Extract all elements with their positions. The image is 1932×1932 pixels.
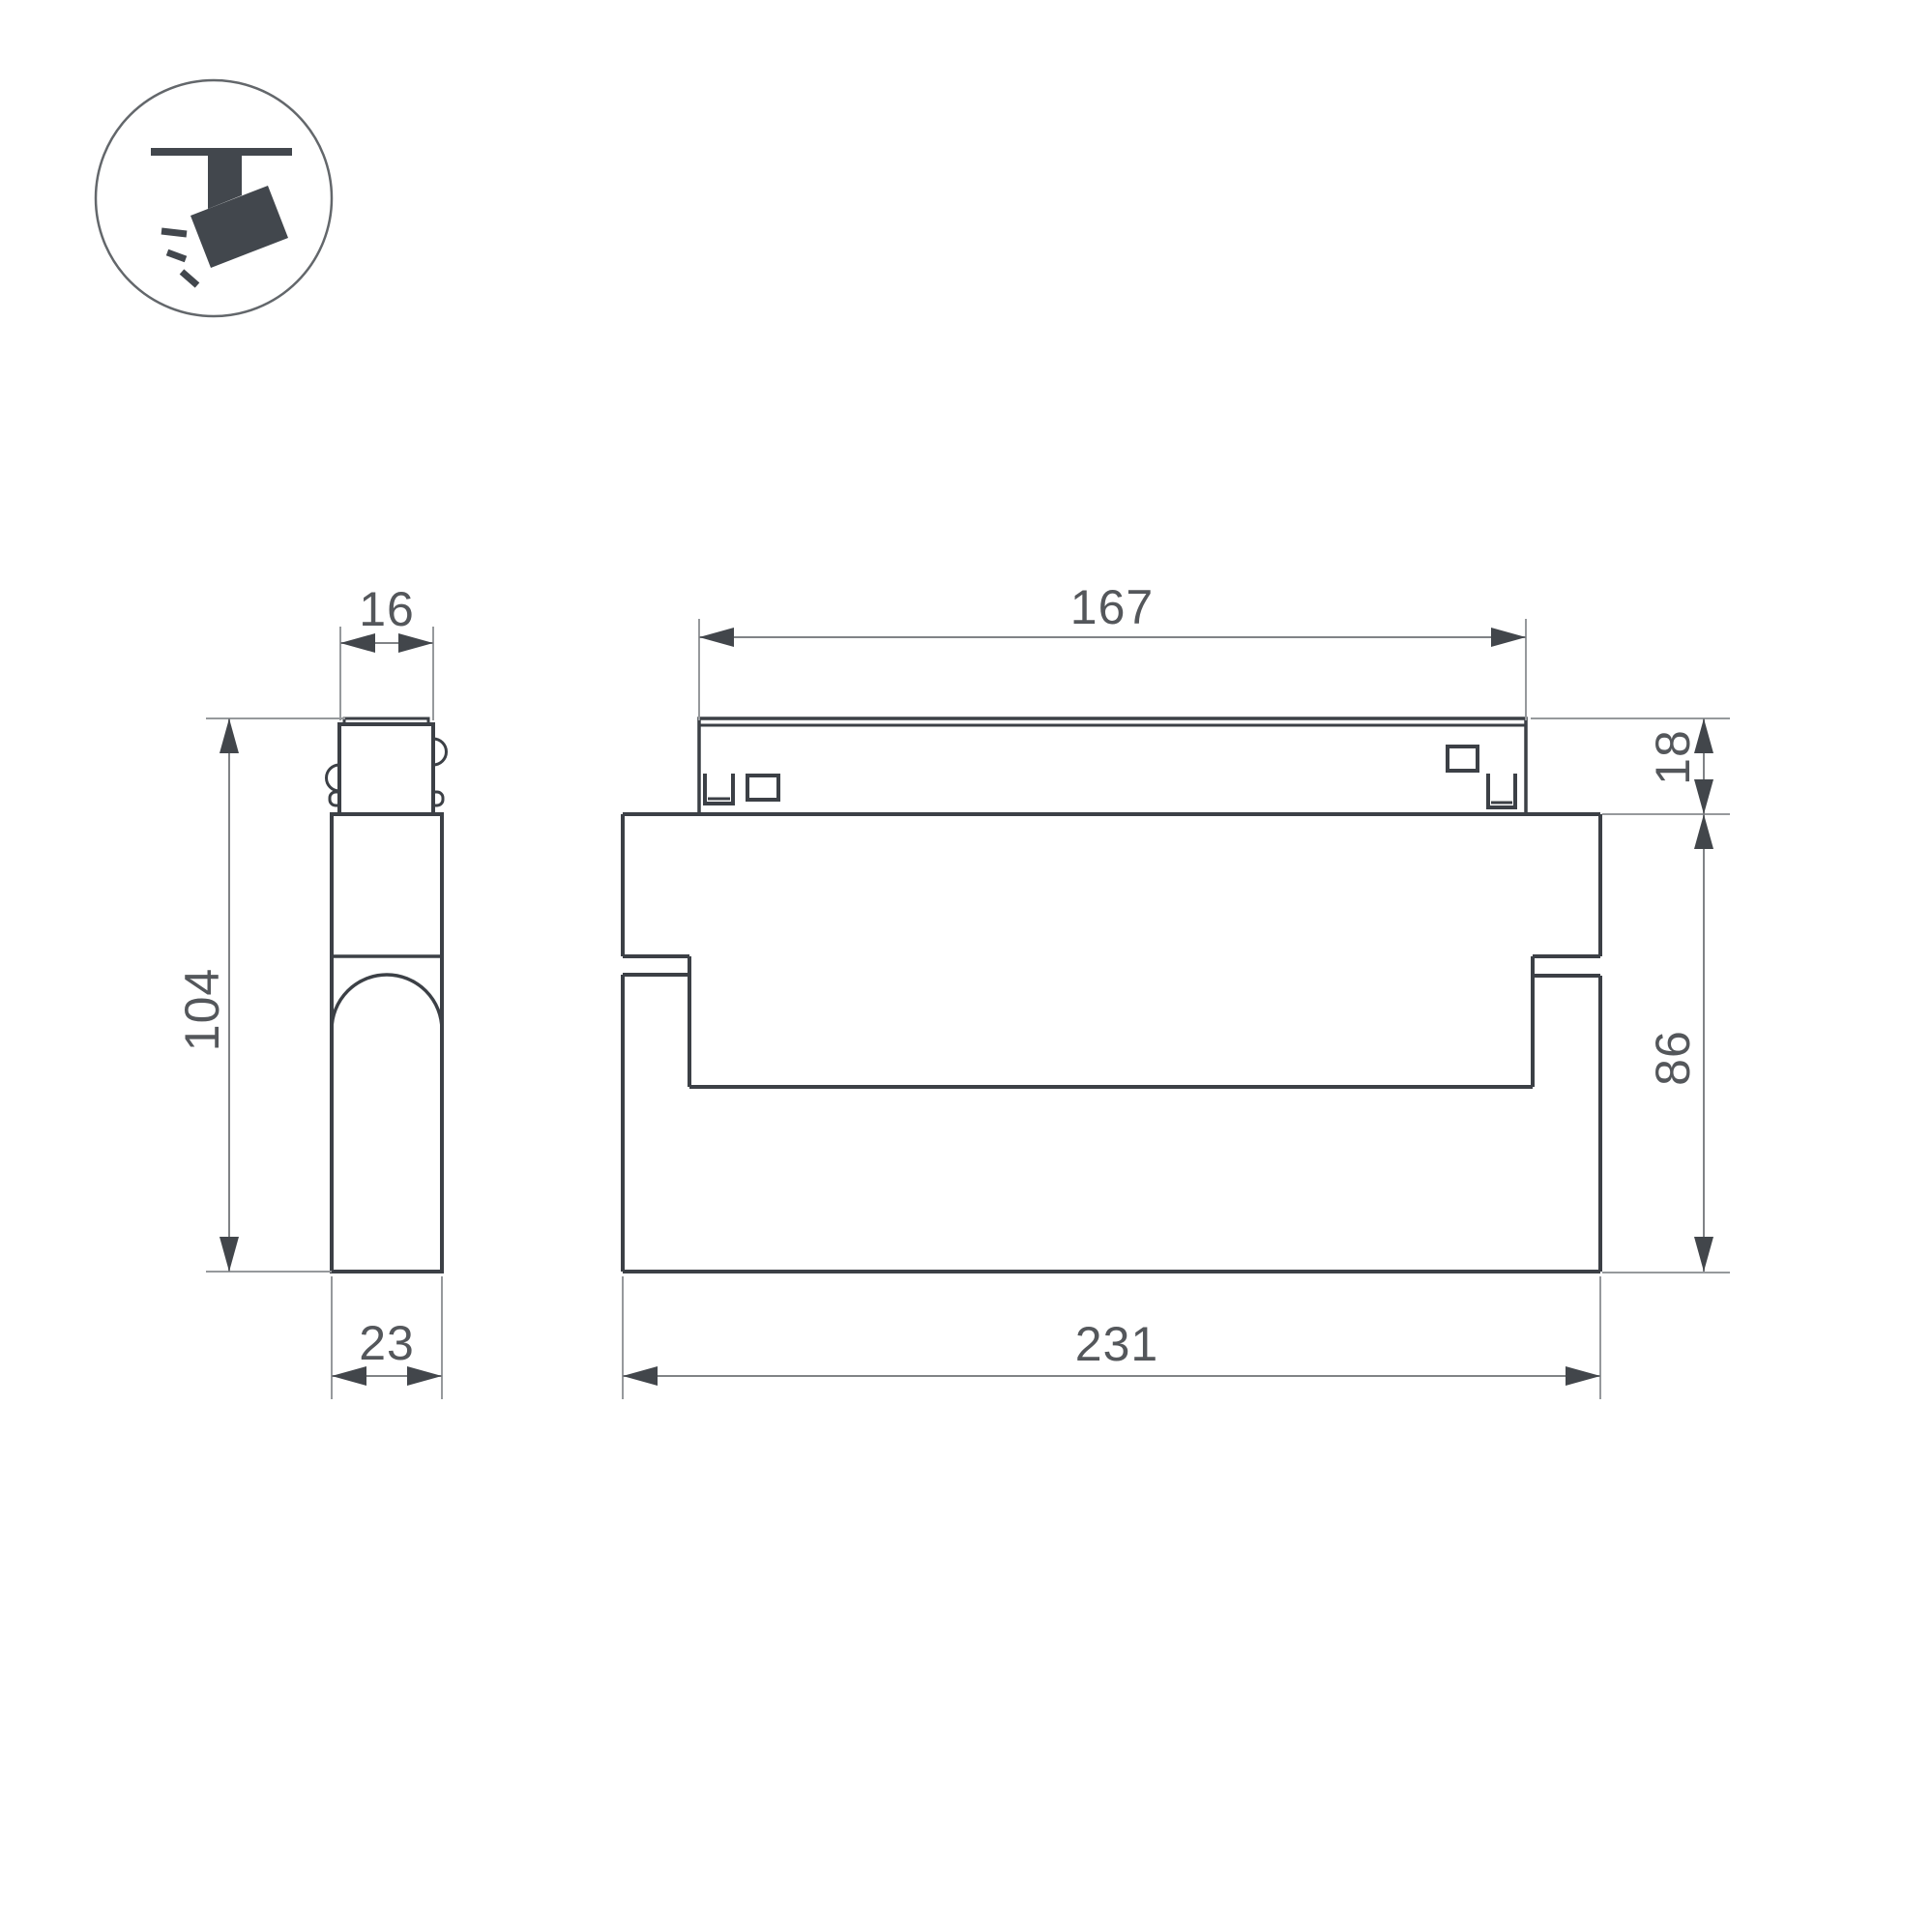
dim-label-16: 16 <box>359 582 415 636</box>
dim-label-104: 104 <box>175 968 229 1051</box>
arrow-167-right <box>1491 628 1526 647</box>
side-body <box>332 814 442 1272</box>
arrow-104-down <box>220 1237 239 1272</box>
dim-label-231: 231 <box>1075 1317 1158 1371</box>
arrow-167-left <box>699 628 734 647</box>
arrow-231-right <box>1566 1366 1600 1386</box>
dim-label-18: 18 <box>1646 729 1700 785</box>
arrow-86-up <box>1694 814 1713 849</box>
dim-label-23: 23 <box>359 1316 415 1370</box>
side-track-connector <box>339 724 433 814</box>
front-view <box>623 718 1600 1272</box>
ray-3 <box>182 272 197 285</box>
front-track-adapter <box>699 718 1526 814</box>
spotlight-glyph <box>151 148 292 268</box>
side-connector-bump-left <box>327 765 340 791</box>
side-connector-bump-right <box>433 739 447 765</box>
track-light-icon <box>96 80 332 316</box>
front-body-outline <box>623 814 1600 1272</box>
arrow-86-down <box>1694 1237 1713 1272</box>
side-head-dome <box>332 975 442 1030</box>
icon-lamp-head <box>190 186 288 268</box>
ray-1 <box>161 231 187 234</box>
arrow-16-right <box>398 633 433 653</box>
arrow-16-left <box>340 633 375 653</box>
arrow-104-up <box>220 718 239 753</box>
dim-label-86: 86 <box>1646 1030 1700 1086</box>
ray-2 <box>167 252 186 259</box>
dimension-lines <box>229 637 1704 1376</box>
front-clip-square-right <box>1448 746 1478 771</box>
dim-label-167: 167 <box>1070 580 1154 634</box>
arrow-231-left <box>623 1366 658 1386</box>
front-clip-square-left <box>747 776 778 800</box>
icon-track-bar <box>151 148 292 156</box>
drawing-canvas: 16 104 23 167 18 86 231 <box>0 0 1932 1932</box>
side-view <box>327 718 447 1272</box>
icon-light-rays <box>161 231 197 285</box>
